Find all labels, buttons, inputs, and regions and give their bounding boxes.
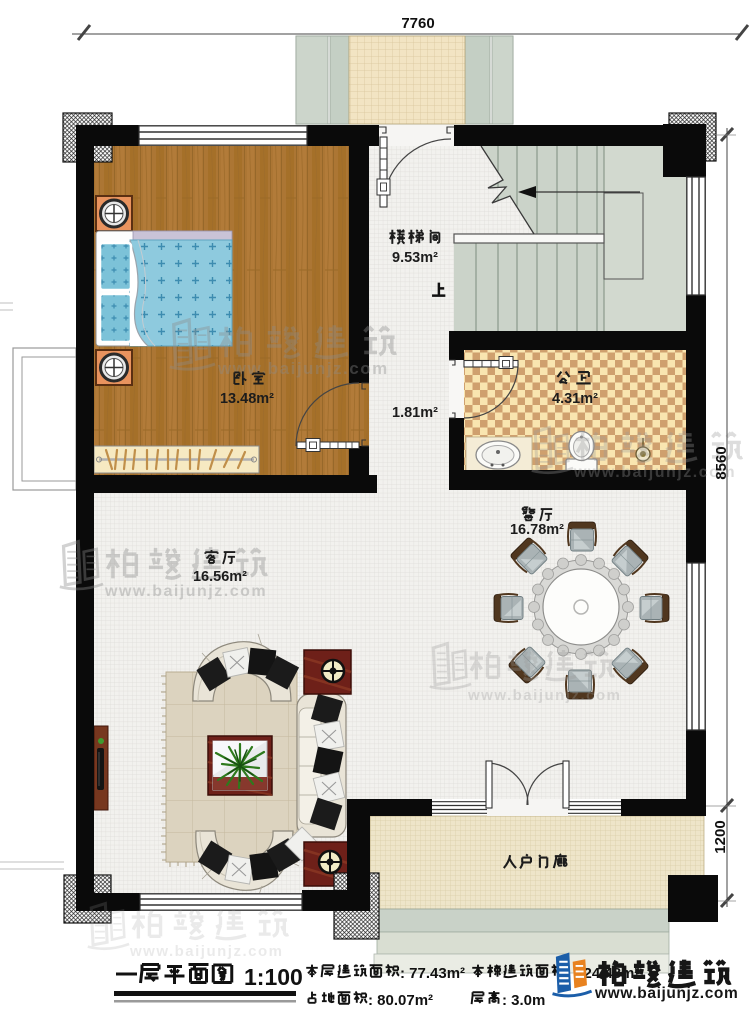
svg-text:: 80.07m²: : 80.07m²	[368, 992, 433, 1009]
svg-text:16.56m²: 16.56m²	[193, 569, 247, 585]
svg-text:www.baijunjz.com: www.baijunjz.com	[104, 583, 267, 600]
svg-text:1:100: 1:100	[244, 964, 303, 990]
svg-text:9.53m²: 9.53m²	[392, 250, 438, 266]
svg-text:13.48m²: 13.48m²	[220, 391, 274, 407]
svg-text:4.31m²: 4.31m²	[552, 391, 598, 407]
svg-text:1200: 1200	[712, 820, 729, 853]
svg-text:: 3.0m: : 3.0m	[502, 992, 545, 1009]
svg-text:www.baijunjz.com: www.baijunjz.com	[594, 985, 738, 1002]
svg-text:www.baijunjz.com: www.baijunjz.com	[573, 464, 736, 481]
svg-text:8560: 8560	[713, 446, 730, 479]
svg-text:www.baijunjz.com: www.baijunjz.com	[467, 687, 621, 704]
svg-text:: 77.43m²: : 77.43m²	[400, 965, 465, 982]
svg-text:www.baijunjz.com: www.baijunjz.com	[129, 943, 283, 960]
svg-text:1.81m²: 1.81m²	[392, 405, 438, 421]
svg-text:16.78m²: 16.78m²	[510, 522, 564, 538]
svg-text:7760: 7760	[401, 15, 434, 32]
